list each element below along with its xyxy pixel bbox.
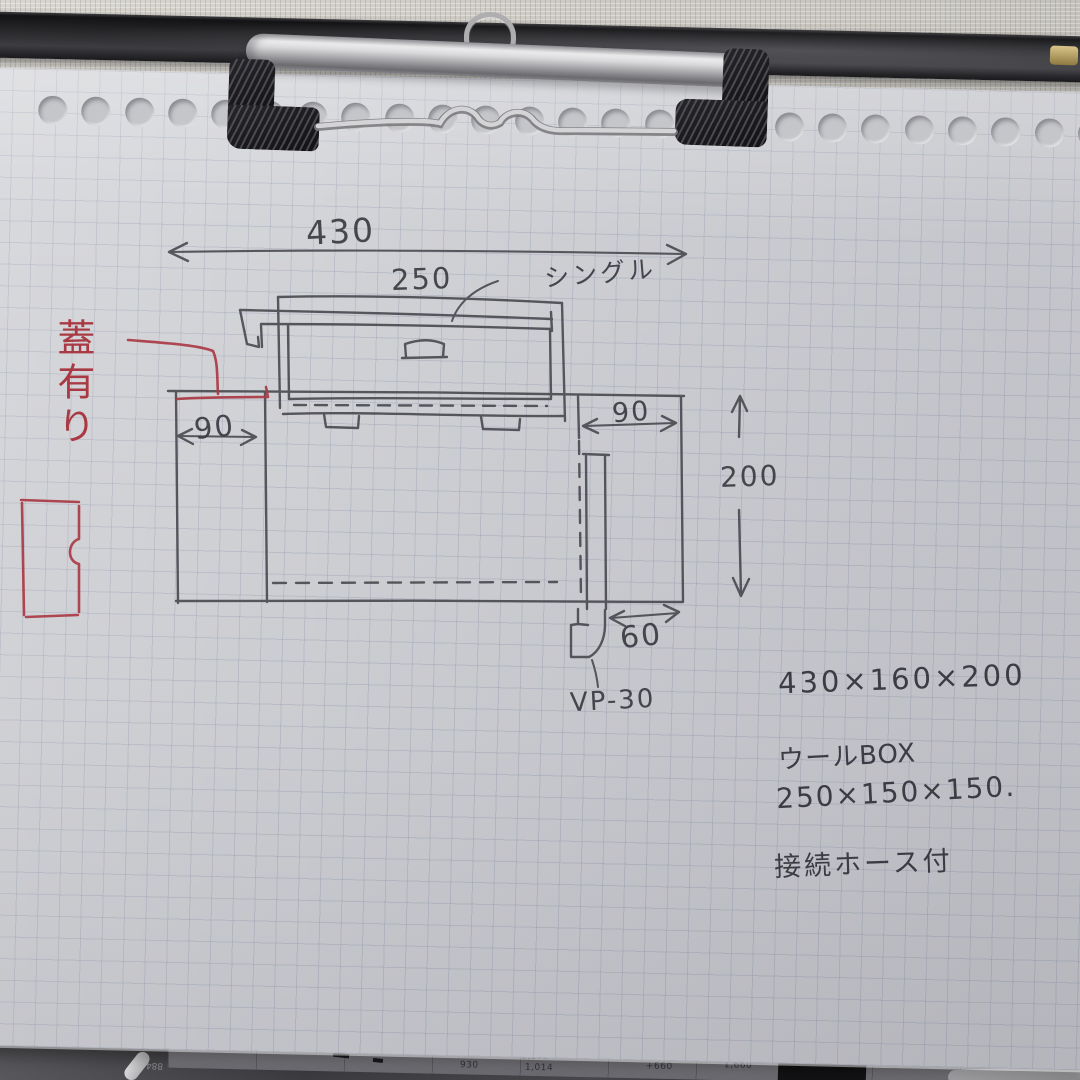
punch-hole [775, 112, 805, 142]
punch-hole [601, 108, 631, 138]
clip-grip-foot [674, 98, 768, 147]
punch-hole [515, 106, 545, 136]
punch-hole [471, 105, 501, 135]
punch-hole [341, 102, 371, 132]
dimension-label-overall-width: 430 [305, 210, 376, 253]
print-mark [373, 1058, 383, 1063]
punch-hole [38, 96, 68, 126]
clip-left-grip [226, 58, 321, 151]
punch-hole [948, 116, 978, 146]
punch-hole [991, 117, 1021, 147]
punch-hole [645, 109, 675, 139]
dimension-label-woolbox-width: 250 [390, 261, 453, 297]
graph-paper-sheet [0, 67, 1080, 1070]
lid-note-label: 蓋有り [50, 318, 95, 450]
catalog-number: 930 [460, 1060, 479, 1070]
clip-right-grip [674, 46, 770, 153]
catalog-number: +660 [646, 1061, 673, 1072]
punch-hole [905, 115, 935, 145]
punch-hole [125, 97, 155, 127]
dimension-label-right-section: 90 [611, 396, 651, 430]
clip-grip-foot [226, 104, 319, 151]
clipboard-photo-scene: 924 930 1,370 1,014 +660 1,660 884 [0, 0, 1080, 1080]
punch-hole [818, 113, 848, 143]
punch-hole [861, 114, 891, 144]
punch-hole [1035, 118, 1065, 148]
spec-note-hose: 接続ホース付 [773, 839, 953, 884]
punch-hole [428, 104, 458, 134]
spec-note-woolbox: ウールBOX [777, 732, 917, 776]
dimension-label-drain-offset: 60 [618, 617, 664, 656]
punch-hole [558, 107, 588, 137]
punch-hole [81, 96, 111, 126]
dimension-label-tank-height: 200 [719, 459, 780, 494]
clipboard-corner-glint [1050, 46, 1079, 66]
catalog-number: 1,014 [525, 1063, 553, 1074]
punch-hole [168, 98, 198, 128]
dimension-label-left-section: 90 [192, 408, 236, 446]
punch-hole [385, 103, 415, 133]
pipe-label: VP-30 [569, 684, 656, 718]
